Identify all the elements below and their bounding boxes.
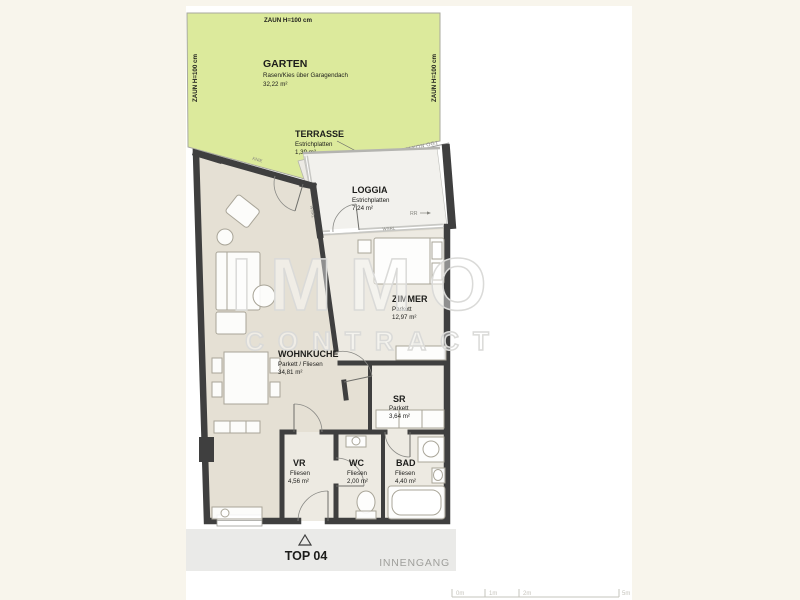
wohnkueche-area: 34,81 m² [278,369,302,376]
bad-name: BAD [396,458,416,468]
garden-desc: Rasen/Kies über Garagendach [263,72,349,79]
corridor-label: INNENGANG [379,557,450,569]
vr-name: VR [293,458,306,468]
sr-material: Parkett [389,405,409,412]
wc-name: WC [349,458,364,468]
wc-area: 2,00 m² [347,478,368,485]
bad-area: 4,40 m² [395,478,416,485]
watermark-line2: CONTRACT [245,326,503,356]
loggia-material: Estrichplatten [352,197,390,204]
fence-label-left: ZAUN H=100 cm [192,54,199,102]
sr-name: SR [393,394,406,404]
shaft [199,437,214,462]
floorplan: ZAUN H=100 cm ZAUN H=100 cm ZAUN H=100 c… [0,0,800,600]
unit-label: TOP 04 [285,549,328,563]
garden-area-value: 32,22 m² [263,81,287,88]
scale-label-5: 5m [622,591,630,597]
footer: TOP 04 INNENGANG [186,529,456,571]
scale-label-0: 0m [456,591,464,597]
scale-label-2: 2m [523,591,531,597]
window-mark-bottom: WSRL [382,226,396,232]
fence-label-top: ZAUN H=100 cm [264,17,312,24]
loggia-name: LOGGIA [352,185,388,195]
wc-material: Fliesen [347,470,368,477]
sr-area: 3,64 m² [389,413,410,420]
rr-label: RR [410,211,418,217]
bad-material: Fliesen [395,470,416,477]
loggia-area-value: 7,24 m² [352,205,373,212]
scale-label-1: 1m [489,591,497,597]
wohnkueche-material: Parkett / Fliesen [278,361,323,368]
terrace-material: Estrichplatten [295,141,333,148]
storage-furniture [376,410,444,428]
garden-name: GARTEN [263,58,307,70]
vr-area: 4,56 m² [288,478,309,485]
terrace-name: TERRASSE [295,129,344,139]
vr-material: Fliesen [290,470,311,477]
loggia-area: LOGGIA Estrichplatten 7,24 m² RR [303,148,452,234]
fence-label-right: ZAUN H=100 cm [431,54,438,102]
watermark-line1: IMMO [231,243,504,326]
watermark: IMMO CONTRACT [231,243,504,356]
